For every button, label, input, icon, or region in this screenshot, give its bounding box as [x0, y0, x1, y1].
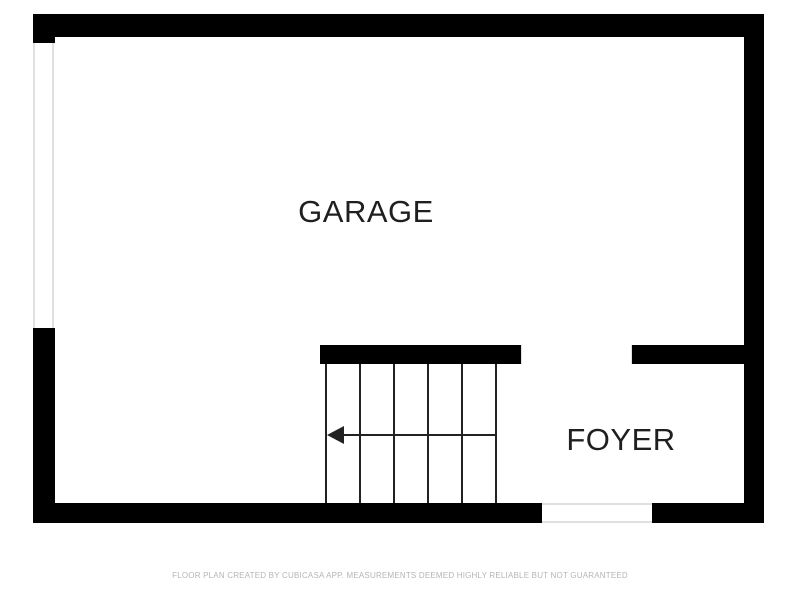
- wall-left-upper-stub: [33, 14, 55, 43]
- wall-mid-right: [632, 345, 744, 364]
- wall-mid-left: [320, 345, 521, 364]
- garage-door-opening: [33, 43, 54, 328]
- footer-disclaimer: FLOOR PLAN CREATED BY CUBICASA APP. MEAS…: [0, 571, 800, 580]
- wall-left-lower: [33, 328, 55, 523]
- interior-doorway-opening: [521, 345, 632, 364]
- wall-bottom-left: [33, 503, 542, 523]
- room-label-foyer: FOYER: [511, 424, 731, 456]
- stair-arrow-left-icon: [327, 426, 344, 444]
- front-door-opening: [542, 503, 652, 523]
- room-label-garage: GARAGE: [256, 196, 476, 228]
- wall-bottom-right: [652, 503, 764, 523]
- floor-plan-canvas: GARAGE FOYER FLOOR PLAN CREATED BY CUBIC…: [0, 0, 800, 600]
- stair-arrow-shaft: [337, 434, 497, 436]
- wall-top: [33, 14, 764, 37]
- wall-right: [744, 14, 764, 523]
